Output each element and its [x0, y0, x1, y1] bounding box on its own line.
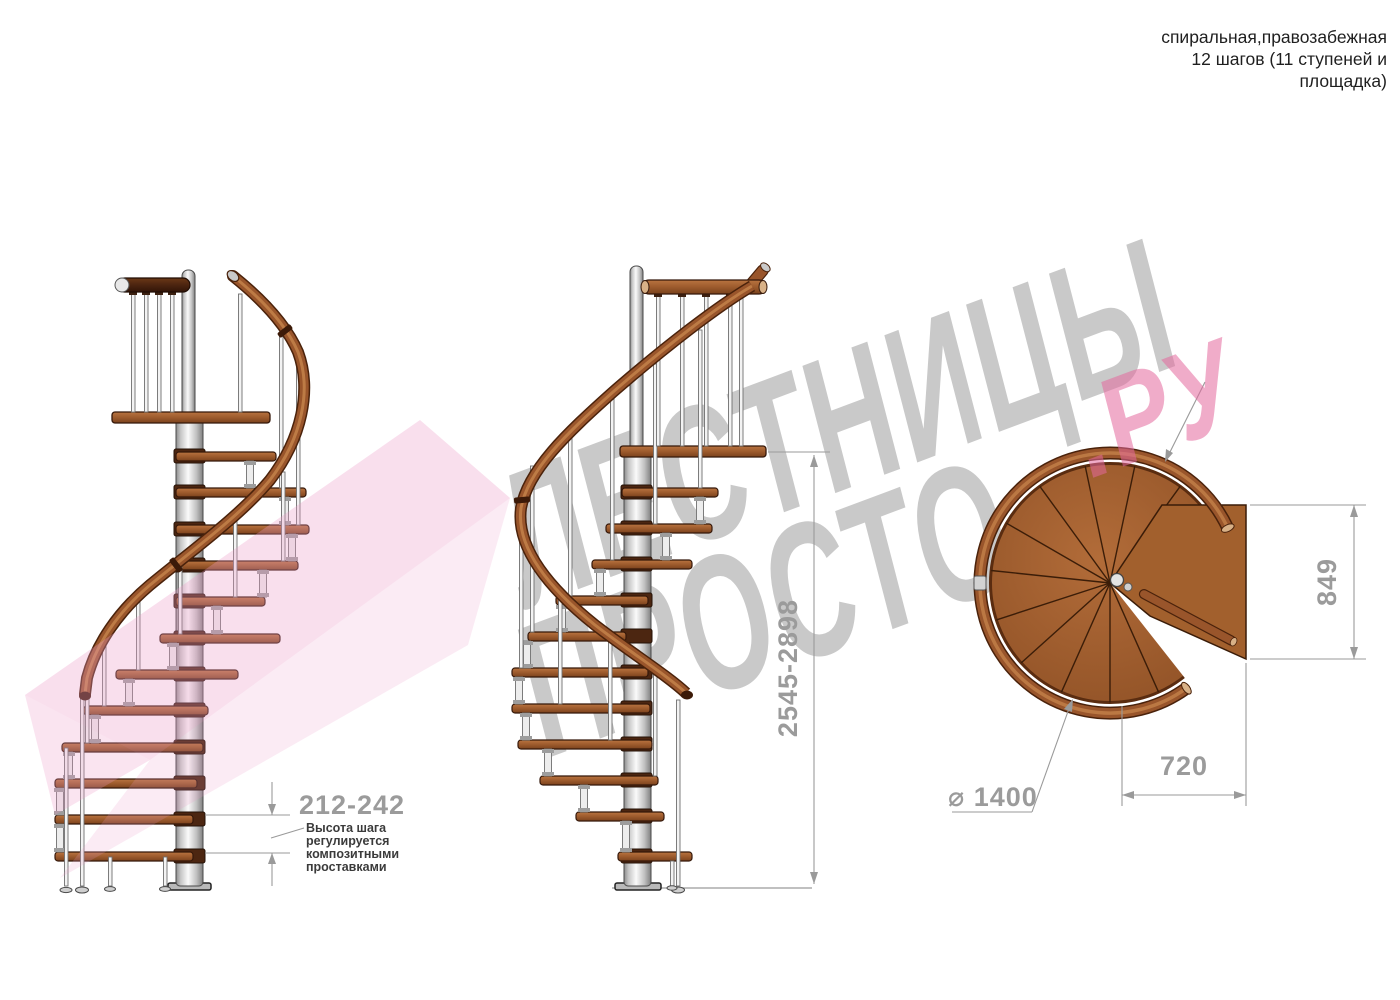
- technical-drawing-canvas: ЛЕСТНИЦЫ ПРОСТО: [0, 0, 1400, 1000]
- dim-landing-depth-label: 849: [1312, 558, 1342, 606]
- baluster-feet: [60, 887, 171, 893]
- rail-fitting: [1124, 583, 1132, 591]
- baluster-feet: [667, 886, 685, 893]
- left-elevation-view: [54, 268, 309, 893]
- arrow-right-icon: [1234, 791, 1246, 799]
- arrow-down-icon: [810, 872, 818, 884]
- arrow-up-icon: [810, 455, 818, 467]
- dim-step-height-label: 212-242: [299, 790, 405, 820]
- step-height-note: Высота шага регулируется композитными пр…: [306, 822, 399, 874]
- staircase-drawing: 212-242 2545-2898 849 720: [0, 0, 1400, 1000]
- rail-end-cap: [79, 692, 91, 701]
- dim-total-height-label: 2545-2898: [773, 599, 803, 737]
- title-line-1: спиральная,правозабежная: [1161, 26, 1387, 48]
- arrow-up-icon: [268, 853, 276, 864]
- landing-platform: [620, 446, 766, 457]
- rail-end-ball: [115, 278, 129, 292]
- rail-end-cap: [681, 691, 693, 700]
- title-line-2: 12 шагов (11 ступеней и: [1161, 48, 1387, 70]
- dim-landing-depth: [1250, 505, 1366, 659]
- dim-diameter-label: ⌀ 1400: [948, 782, 1038, 812]
- landing-platform: [112, 412, 270, 423]
- pole-top: [1111, 574, 1124, 587]
- treads: [512, 488, 718, 861]
- landing-guardrail: [115, 278, 190, 412]
- middle-elevation-view: [512, 261, 812, 893]
- rail-bracket: [974, 576, 986, 590]
- title-line-3: площадка): [1161, 70, 1387, 92]
- upper-post: [630, 266, 643, 452]
- arrow-left-icon: [1122, 791, 1134, 799]
- arrow-up-icon: [1350, 505, 1358, 517]
- dim-landing-width-label: 720: [1160, 751, 1208, 781]
- arrow-down-icon: [268, 804, 276, 815]
- note-line-4: проставками: [306, 861, 399, 874]
- dim-step-height: [205, 782, 304, 886]
- arrow-down-icon: [1350, 647, 1358, 659]
- title-block: спиральная,правозабежная 12 шагов (11 ст…: [1161, 26, 1387, 92]
